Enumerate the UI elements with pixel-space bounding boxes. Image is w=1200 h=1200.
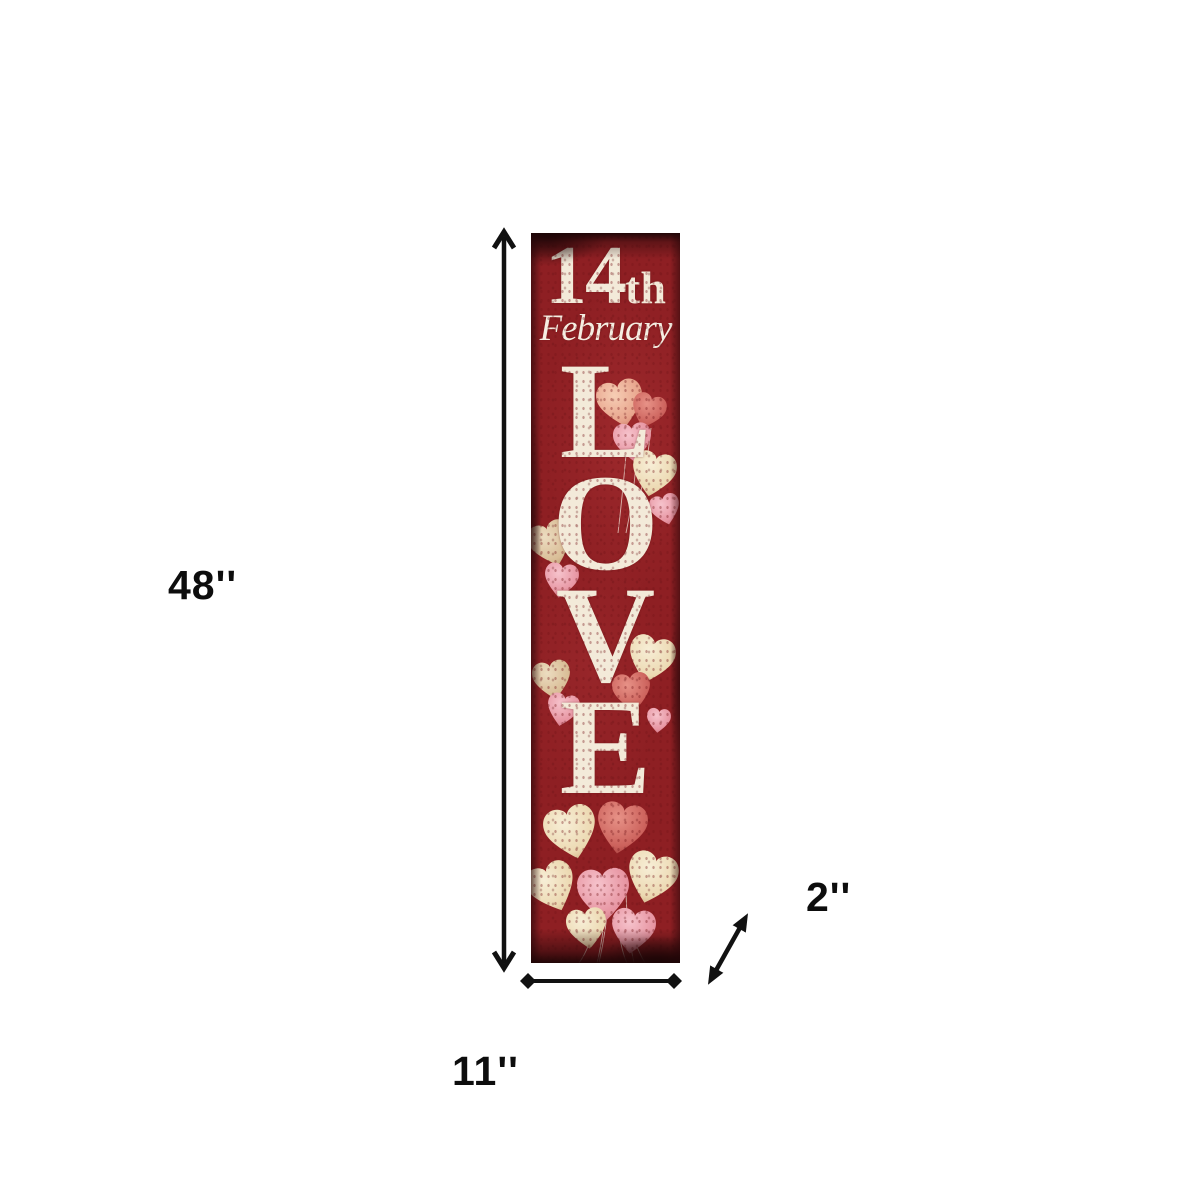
sign-love-word: L O V E bbox=[531, 355, 680, 803]
sign-date-suffix: th bbox=[625, 262, 666, 313]
width-dimension-label: 11'' bbox=[452, 1048, 519, 1095]
depth-dimension-arrow bbox=[697, 906, 761, 990]
width-dimension-arrow bbox=[516, 969, 686, 993]
depth-dimension-label: 2'' bbox=[806, 874, 851, 921]
height-dimension-label: 48'' bbox=[168, 562, 237, 609]
product-dimension-figure: 14th February L O V E 48'' 11'' bbox=[0, 0, 1200, 1200]
height-dimension-arrow bbox=[491, 227, 517, 973]
porch-sign: 14th February L O V E bbox=[531, 233, 680, 963]
love-letter-e: E bbox=[559, 691, 651, 803]
